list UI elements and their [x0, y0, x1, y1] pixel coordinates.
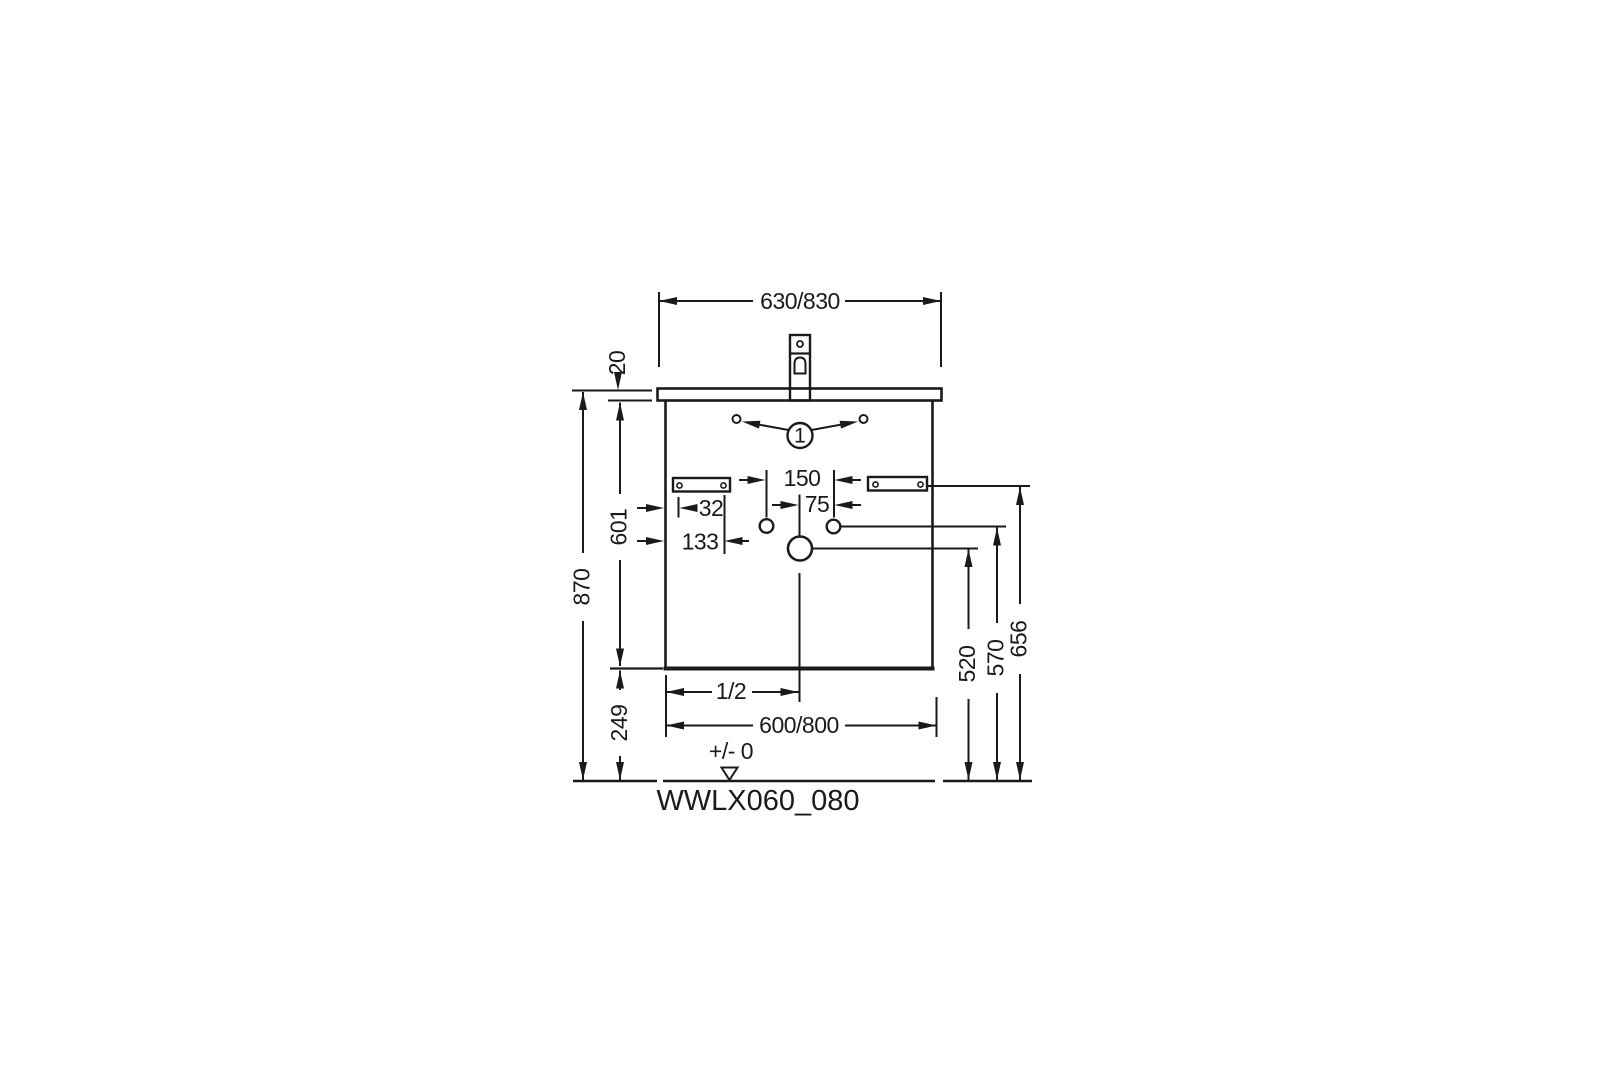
arrowhead [1016, 762, 1024, 780]
dim-half-width-label: 1/2 [716, 678, 746, 704]
dim-drain-height-label: 520 [954, 646, 980, 683]
arrowhead [616, 671, 624, 689]
arrowhead [579, 762, 587, 780]
right-bracket-screw-hole-1 [873, 482, 878, 487]
arrowhead [965, 762, 973, 780]
arrowhead [659, 297, 677, 305]
dim-bracket-screw-near [637, 497, 698, 518]
dim-countertop-thickness-label: 20 [604, 351, 630, 376]
arrowhead [646, 504, 664, 512]
arrowhead [666, 722, 684, 730]
right-mounting-bracket [868, 477, 927, 491]
callout-number: 1 [794, 425, 806, 448]
arrowhead [835, 476, 853, 484]
dim-cabinet-height-label: 601 [606, 509, 632, 546]
datum-triangle [722, 768, 738, 781]
drain-hole [788, 537, 812, 561]
dim-total-height-label: 870 [569, 569, 595, 606]
arrowhead [646, 537, 664, 545]
arrowhead [616, 403, 624, 421]
arrowhead [781, 501, 799, 509]
callout-target-left [733, 415, 741, 423]
arrowhead [666, 688, 684, 696]
arrowhead [993, 762, 1001, 780]
faucet [790, 335, 810, 401]
datum-symbol [722, 768, 738, 781]
dim-bracket-screw-far-label: 133 [682, 529, 719, 555]
arrowhead [965, 549, 973, 567]
callout-arrow-right [840, 421, 858, 429]
arrowhead [748, 476, 766, 484]
faucet-body [790, 335, 810, 401]
arrowhead [725, 537, 743, 545]
arrowhead [680, 504, 698, 512]
arrowhead [616, 649, 624, 667]
left-mounting-bracket [673, 478, 730, 492]
callout-target-right [860, 415, 868, 423]
faucet-dot [797, 341, 803, 347]
model-code: WWLX060_080 [656, 785, 859, 817]
datum-label: +/- 0 [709, 738, 753, 764]
dim-tap-hole-spacing-label: 150 [784, 465, 821, 491]
left-supply-hole [760, 519, 774, 533]
faucet-lever [795, 358, 806, 374]
dim-hole-offset-label: 75 [805, 491, 830, 517]
arrowhead [781, 688, 799, 696]
left-bracket-screw-hole-2 [721, 483, 726, 488]
dim-bracket-height-label: 656 [1006, 621, 1032, 658]
right-bracket-screw-hole-2 [918, 482, 923, 487]
arrowhead [993, 528, 1001, 546]
arrowhead [923, 297, 941, 305]
drawing-canvas: 1 630/830 20 870 601 249 [0, 0, 1620, 1080]
dim-cabinet-width-label: 600/800 [759, 712, 839, 738]
right-supply-hole [827, 520, 841, 534]
vanity-unit [610, 335, 942, 702]
arrowhead [616, 762, 624, 780]
arrowhead [1016, 487, 1024, 505]
technical-drawing: 1 630/830 20 870 601 249 [0, 0, 1620, 1080]
left-bracket-screw-hole-1 [677, 483, 682, 488]
callout-arrow-left [742, 421, 760, 429]
dim-top-width-label: 630/830 [760, 288, 840, 314]
dim-bracket-screw-near-label: 32 [699, 495, 724, 521]
arrowhead [919, 722, 937, 730]
dim-bottom-clearance-label: 249 [606, 705, 632, 742]
countertop [658, 389, 942, 401]
arrowhead [579, 392, 587, 410]
arrowhead [835, 501, 853, 509]
